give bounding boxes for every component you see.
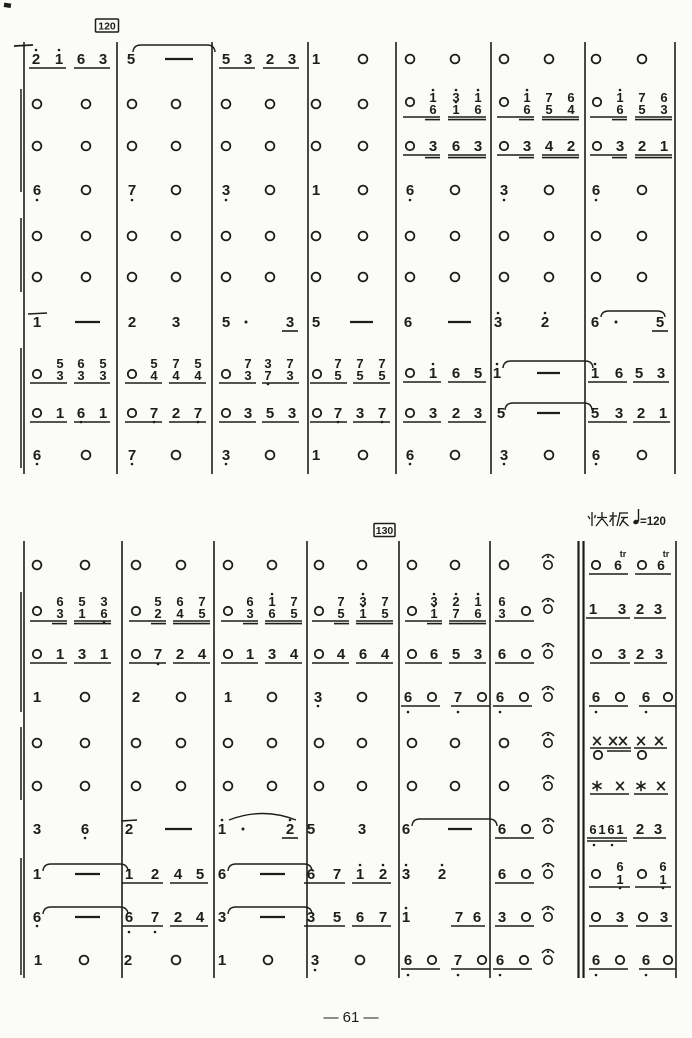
svg-text:3: 3 — [494, 314, 502, 331]
svg-text:7: 7 — [455, 909, 463, 926]
svg-text:1: 1 — [598, 822, 605, 837]
svg-text:7: 7 — [150, 405, 158, 422]
svg-text:3: 3 — [618, 646, 626, 663]
svg-text:2: 2 — [124, 952, 132, 969]
svg-text:3: 3 — [429, 138, 437, 155]
svg-text:5: 5 — [656, 314, 664, 331]
svg-text:1: 1 — [218, 952, 226, 969]
svg-text:2: 2 — [125, 821, 133, 838]
svg-text:3: 3 — [172, 314, 180, 331]
svg-text:2: 2 — [174, 909, 182, 926]
svg-text:3: 3 — [655, 646, 663, 663]
svg-text:6: 6 — [77, 405, 85, 422]
svg-text:3: 3 — [500, 182, 508, 199]
svg-text:5: 5 — [378, 368, 385, 383]
svg-text:5: 5 — [452, 646, 460, 663]
svg-text:6: 6 — [33, 909, 41, 926]
svg-text:3: 3 — [654, 601, 662, 618]
svg-text:2: 2 — [637, 405, 645, 422]
svg-text:1: 1 — [100, 646, 108, 663]
svg-text:2: 2 — [32, 51, 40, 68]
svg-text:2: 2 — [176, 646, 184, 663]
svg-text:4: 4 — [198, 646, 207, 663]
svg-text:5: 5 — [337, 606, 344, 621]
svg-text:6: 6 — [592, 447, 600, 464]
svg-text:1: 1 — [429, 365, 437, 382]
svg-text:2: 2 — [636, 646, 644, 663]
svg-text:6: 6 — [498, 821, 506, 838]
svg-text:1: 1 — [659, 405, 667, 422]
svg-text:3: 3 — [99, 368, 106, 383]
svg-text:6: 6 — [452, 138, 460, 155]
svg-text:6: 6 — [642, 952, 650, 969]
svg-text:3: 3 — [616, 909, 624, 926]
svg-text:6: 6 — [359, 646, 367, 663]
svg-text:2: 2 — [154, 606, 161, 621]
svg-text:6: 6 — [614, 557, 622, 573]
svg-text:3: 3 — [56, 368, 63, 383]
svg-text:1: 1 — [430, 606, 437, 621]
svg-text:6: 6 — [657, 557, 665, 573]
svg-text:2: 2 — [151, 866, 159, 883]
svg-text:4: 4 — [381, 646, 390, 663]
svg-text:2: 2 — [541, 314, 549, 331]
svg-text:3: 3 — [307, 909, 315, 926]
svg-text:4: 4 — [567, 102, 575, 117]
svg-text:6: 6 — [100, 606, 107, 621]
svg-text:6: 6 — [616, 102, 623, 117]
svg-text:5: 5 — [334, 368, 341, 383]
svg-text:2: 2 — [636, 821, 644, 838]
svg-text:6: 6 — [268, 606, 275, 621]
svg-text:1: 1 — [452, 102, 459, 117]
svg-text:3: 3 — [657, 365, 665, 382]
svg-text:3: 3 — [523, 138, 531, 155]
svg-text:3: 3 — [474, 138, 482, 155]
svg-text:4: 4 — [172, 368, 180, 383]
svg-text:5: 5 — [198, 606, 205, 621]
svg-text:6: 6 — [406, 182, 414, 199]
svg-text:6: 6 — [406, 447, 414, 464]
svg-text:3: 3 — [615, 405, 623, 422]
svg-text:5: 5 — [591, 405, 599, 422]
svg-text:2: 2 — [286, 821, 294, 838]
svg-text:6: 6 — [77, 51, 85, 68]
svg-text:6: 6 — [474, 102, 481, 117]
svg-text:6: 6 — [33, 182, 41, 199]
svg-text:6: 6 — [404, 952, 412, 969]
svg-text:3: 3 — [616, 138, 624, 155]
svg-text:130: 130 — [376, 525, 394, 537]
svg-text:7: 7 — [378, 405, 386, 422]
svg-text:3: 3 — [33, 821, 41, 838]
svg-text:4: 4 — [290, 646, 299, 663]
svg-text:1: 1 — [33, 689, 41, 706]
svg-text:5: 5 — [474, 365, 482, 382]
svg-text:5: 5 — [497, 405, 505, 422]
svg-text:3: 3 — [311, 952, 319, 969]
svg-text:2: 2 — [128, 314, 136, 331]
svg-text:7: 7 — [333, 866, 341, 883]
svg-text:1: 1 — [125, 866, 133, 883]
svg-text:1: 1 — [589, 601, 597, 618]
svg-text:5: 5 — [196, 866, 204, 883]
svg-text:3: 3 — [78, 646, 86, 663]
svg-text:4: 4 — [545, 138, 554, 155]
svg-text:3: 3 — [474, 405, 482, 422]
svg-text:1: 1 — [33, 866, 41, 883]
svg-text:1: 1 — [493, 365, 501, 382]
svg-text:7: 7 — [379, 909, 387, 926]
svg-text:6: 6 — [404, 314, 412, 331]
svg-text:6: 6 — [592, 689, 600, 706]
svg-text:4: 4 — [337, 646, 346, 663]
svg-text:7: 7 — [194, 405, 202, 422]
svg-text:1: 1 — [224, 689, 232, 706]
svg-text:3: 3 — [314, 689, 322, 706]
svg-text:3: 3 — [244, 405, 252, 422]
svg-text:5: 5 — [545, 102, 552, 117]
svg-text:tr: tr — [663, 549, 670, 559]
svg-text:5: 5 — [312, 314, 320, 331]
svg-text:1: 1 — [33, 314, 41, 331]
svg-text:1: 1 — [356, 866, 364, 883]
svg-text:3: 3 — [286, 368, 293, 383]
svg-text:1: 1 — [402, 909, 410, 926]
svg-text:5: 5 — [356, 368, 363, 383]
svg-text:6: 6 — [592, 182, 600, 199]
svg-text:7: 7 — [264, 368, 271, 383]
svg-text:3: 3 — [222, 447, 230, 464]
svg-text:3: 3 — [654, 821, 662, 838]
svg-text:3: 3 — [77, 368, 84, 383]
svg-text:4: 4 — [196, 909, 205, 926]
svg-text:6: 6 — [430, 646, 438, 663]
svg-text:1: 1 — [78, 606, 85, 621]
svg-text:7: 7 — [452, 606, 459, 621]
svg-text:1: 1 — [591, 365, 599, 382]
svg-text:6: 6 — [404, 689, 412, 706]
svg-text:3: 3 — [474, 646, 482, 663]
svg-text:3: 3 — [498, 909, 506, 926]
svg-text:6: 6 — [402, 821, 410, 838]
svg-text:3: 3 — [246, 606, 253, 621]
svg-text:5: 5 — [222, 314, 230, 331]
svg-text:1: 1 — [359, 606, 366, 621]
svg-text:2: 2 — [266, 51, 274, 68]
svg-text:6: 6 — [607, 822, 614, 837]
svg-text:3: 3 — [660, 102, 667, 117]
svg-text:3: 3 — [500, 447, 508, 464]
svg-text:2: 2 — [172, 405, 180, 422]
svg-text:6: 6 — [589, 822, 596, 837]
svg-text:5: 5 — [307, 821, 315, 838]
svg-text:7: 7 — [128, 447, 136, 464]
svg-text:7: 7 — [154, 646, 162, 663]
svg-text:6: 6 — [125, 909, 133, 926]
svg-text:5: 5 — [635, 365, 643, 382]
svg-text:6: 6 — [474, 606, 481, 621]
svg-text:7: 7 — [128, 182, 136, 199]
svg-text:3: 3 — [498, 606, 505, 621]
svg-text:1: 1 — [99, 405, 107, 422]
svg-text:tr: tr — [620, 549, 627, 559]
svg-text:2: 2 — [438, 866, 446, 883]
svg-text:1: 1 — [34, 952, 42, 969]
svg-text:5: 5 — [266, 405, 274, 422]
svg-text:3: 3 — [286, 314, 294, 331]
svg-text:1: 1 — [246, 646, 254, 663]
svg-text:3: 3 — [288, 51, 296, 68]
svg-text:1: 1 — [218, 821, 226, 838]
svg-text:1: 1 — [312, 182, 320, 199]
svg-text:6: 6 — [81, 821, 89, 838]
svg-text:4: 4 — [194, 368, 202, 383]
svg-text:5: 5 — [333, 909, 341, 926]
svg-text:7: 7 — [151, 909, 159, 926]
svg-text:1: 1 — [659, 872, 666, 887]
svg-text:6: 6 — [218, 866, 226, 883]
svg-text:5: 5 — [381, 606, 388, 621]
svg-text:6: 6 — [429, 102, 436, 117]
svg-text:3: 3 — [268, 646, 276, 663]
svg-text:1: 1 — [56, 405, 64, 422]
svg-text:=120: =120 — [640, 516, 666, 528]
svg-text:6: 6 — [498, 646, 506, 663]
svg-text:3: 3 — [218, 909, 226, 926]
svg-text:5: 5 — [222, 51, 230, 68]
svg-text:6: 6 — [33, 447, 41, 464]
svg-text:2: 2 — [567, 138, 575, 155]
svg-text:6: 6 — [356, 909, 364, 926]
svg-text:120: 120 — [98, 21, 116, 33]
svg-text:4: 4 — [174, 866, 183, 883]
svg-text:6: 6 — [496, 689, 504, 706]
svg-text:6: 6 — [523, 102, 530, 117]
svg-text:3: 3 — [356, 405, 364, 422]
svg-text:6: 6 — [642, 689, 650, 706]
svg-text:2: 2 — [636, 601, 644, 618]
svg-text:3: 3 — [244, 51, 252, 68]
svg-text:6: 6 — [473, 909, 481, 926]
svg-text:1: 1 — [56, 646, 64, 663]
svg-text:1: 1 — [55, 51, 63, 68]
svg-text:3: 3 — [429, 405, 437, 422]
svg-text:6: 6 — [452, 365, 460, 382]
svg-text:6: 6 — [307, 866, 315, 883]
svg-text:1: 1 — [660, 138, 668, 155]
svg-text:2: 2 — [379, 866, 387, 883]
svg-text:— 61 —: — 61 — — [323, 1009, 378, 1026]
svg-text:5: 5 — [290, 606, 297, 621]
svg-text:5: 5 — [638, 102, 645, 117]
svg-text:5: 5 — [127, 51, 135, 68]
svg-text:3: 3 — [99, 51, 107, 68]
svg-text:1: 1 — [616, 822, 623, 837]
svg-text:7: 7 — [334, 405, 342, 422]
svg-text:2: 2 — [132, 689, 140, 706]
svg-text:6: 6 — [496, 952, 504, 969]
svg-text:3: 3 — [660, 909, 668, 926]
svg-text:3: 3 — [618, 601, 626, 618]
svg-text:7: 7 — [454, 952, 462, 969]
svg-text:3: 3 — [288, 405, 296, 422]
svg-text:3: 3 — [56, 606, 63, 621]
svg-text:6: 6 — [592, 952, 600, 969]
svg-text:3: 3 — [358, 821, 366, 838]
svg-text:3: 3 — [222, 182, 230, 199]
svg-text:1: 1 — [312, 51, 320, 68]
svg-text:3: 3 — [244, 368, 251, 383]
svg-text:6: 6 — [591, 314, 599, 331]
svg-text:7: 7 — [454, 689, 462, 706]
svg-text:2: 2 — [638, 138, 646, 155]
svg-text:1: 1 — [616, 872, 623, 887]
svg-text:2: 2 — [452, 405, 460, 422]
svg-text:3: 3 — [402, 866, 410, 883]
svg-text:1: 1 — [312, 447, 320, 464]
svg-text:6: 6 — [498, 866, 506, 883]
svg-text:6: 6 — [615, 365, 623, 382]
svg-text:4: 4 — [176, 606, 184, 621]
svg-text:4: 4 — [150, 368, 158, 383]
